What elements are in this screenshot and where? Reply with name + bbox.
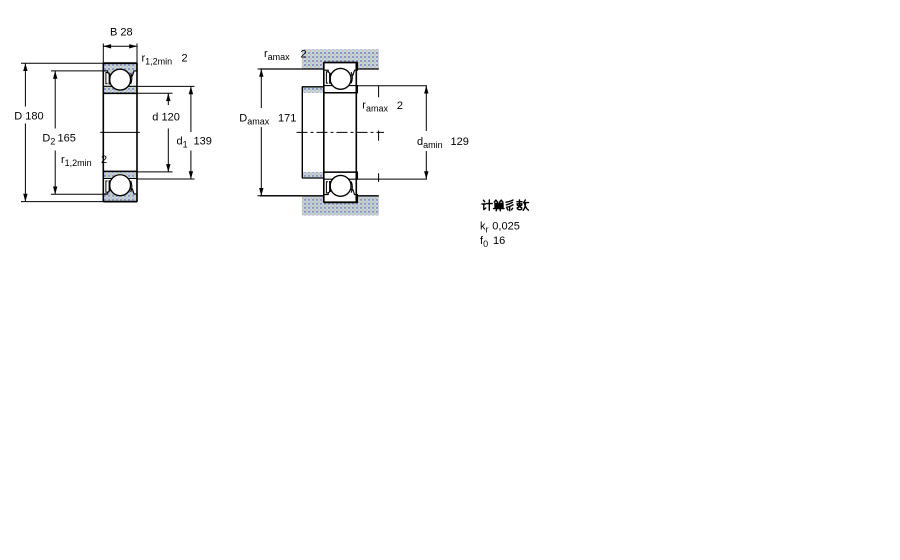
svg-text:139: 139	[194, 136, 212, 148]
svg-text:2: 2	[301, 49, 307, 61]
svg-text:d 120: d 120	[152, 112, 180, 124]
svg-text:171: 171	[278, 113, 296, 125]
svg-text:2: 2	[182, 53, 188, 65]
svg-text:129: 129	[451, 136, 469, 148]
svg-text:B 28: B 28	[110, 27, 133, 39]
svg-text:16: 16	[493, 235, 505, 247]
svg-text:165: 165	[58, 133, 76, 145]
svg-text:D 180: D 180	[14, 111, 43, 123]
svg-text:2: 2	[101, 154, 107, 166]
svg-text:2: 2	[397, 100, 403, 112]
svg-text:0,025: 0,025	[492, 221, 520, 233]
